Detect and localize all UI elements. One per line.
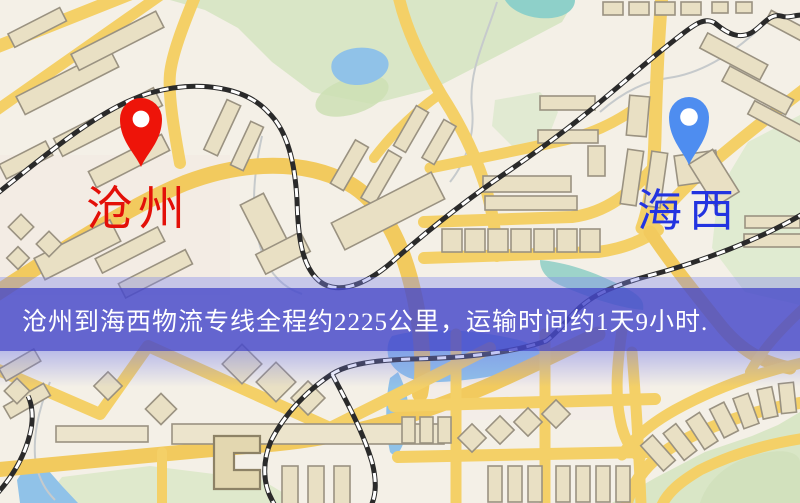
map-canvas (0, 0, 800, 503)
destination-pin[interactable] (661, 93, 717, 169)
map-container: 沧州 海西 沧州到海西物流专线全程约2225公里，运输时间约1天9小时. (0, 0, 800, 503)
banner-tint-top (0, 277, 800, 288)
route-info-banner: 沧州到海西物流专线全程约2225公里，运输时间约1天9小时. (0, 288, 800, 351)
origin-city-label: 沧州 (86, 170, 190, 239)
banner-tint-bottom (0, 351, 800, 387)
destination-city-label: 海西 (637, 174, 741, 239)
route-info-text: 沧州到海西物流专线全程约2225公里，运输时间约1天9小时. (0, 302, 708, 338)
origin-pin[interactable] (113, 95, 169, 171)
origin-pin-icon (113, 95, 169, 171)
destination-pin-icon (661, 93, 717, 169)
